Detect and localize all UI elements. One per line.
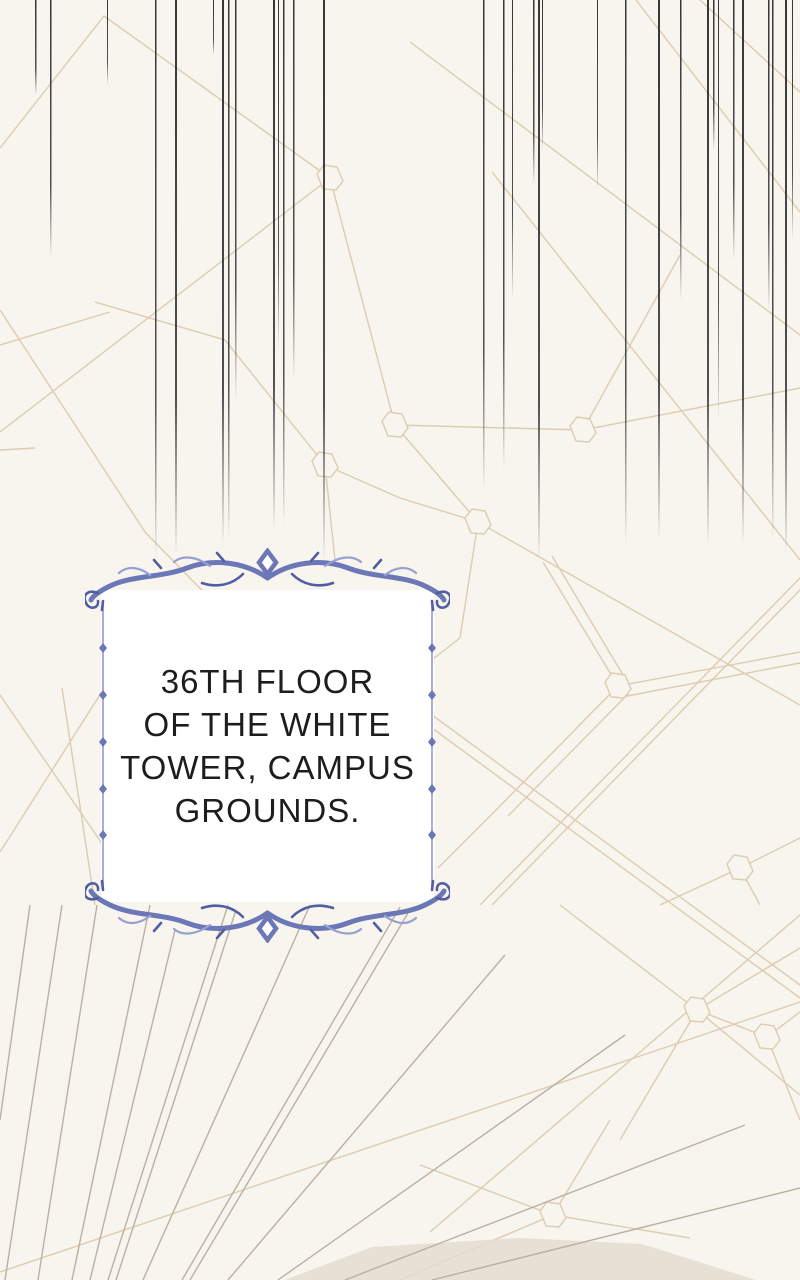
ground-shading <box>285 1238 756 1280</box>
narration-line: 36TH FLOOR <box>161 660 375 703</box>
fan-lines <box>0 905 800 1280</box>
webtoon-panel: 36TH FLOOR OF THE WHITE TOWER, CAMPUS GR… <box>0 0 800 1280</box>
narration-text: 36TH FLOOR OF THE WHITE TOWER, CAMPUS GR… <box>101 590 434 902</box>
narration-line: GROUNDS. <box>175 789 361 832</box>
narration-line: TOWER, CAMPUS <box>120 746 415 789</box>
speed-lines <box>35 0 793 560</box>
narration-line: OF THE WHITE <box>144 703 392 746</box>
